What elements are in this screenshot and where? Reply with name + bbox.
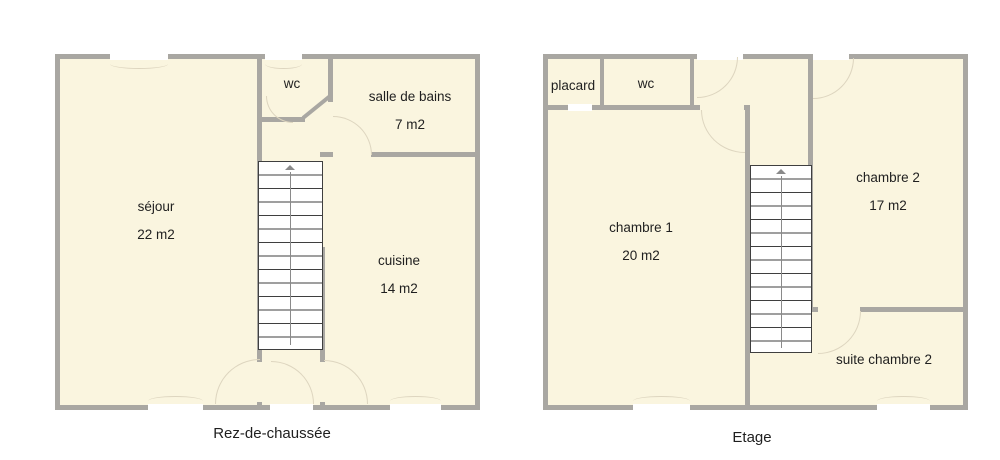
room-name: chambre 1 bbox=[609, 214, 673, 242]
room-label-chambre2: chambre 2 17 m2 bbox=[856, 164, 920, 220]
room-label-wc-etage: wc bbox=[638, 70, 655, 98]
wall-wc-right-etage bbox=[690, 54, 694, 110]
wall-sdb-bottom-right bbox=[371, 152, 480, 157]
room-label-suite-chambre2: suite chambre 2 bbox=[836, 346, 932, 374]
room-label-wc: wc bbox=[284, 70, 301, 98]
wall-suite-top-b bbox=[860, 307, 968, 312]
floor-caption-etage: Etage bbox=[732, 429, 771, 446]
room-name: suite chambre 2 bbox=[836, 346, 932, 374]
window-suite-bottom-curve bbox=[877, 396, 930, 406]
room-area: 17 m2 bbox=[856, 192, 920, 220]
wall-exterior-top-etage bbox=[543, 54, 968, 59]
room-area: 20 m2 bbox=[609, 242, 673, 270]
floorplan-canvas: séjour 22 m2 wc salle de bains 7 m2 cuis… bbox=[0, 0, 1000, 460]
floor-caption-rez-de-chaussee: Rez-de-chaussée bbox=[213, 425, 331, 442]
entrance-door-opening bbox=[270, 404, 313, 411]
room-name: placard bbox=[551, 72, 595, 100]
room-name: wc bbox=[284, 70, 301, 98]
room-area: 22 m2 bbox=[137, 221, 175, 249]
wall-exterior-left bbox=[55, 54, 60, 410]
room-name: wc bbox=[638, 70, 655, 98]
room-area: 7 m2 bbox=[369, 111, 452, 139]
window-wc-top-curve bbox=[265, 59, 302, 69]
window-sejour-bottom-curve bbox=[148, 396, 203, 406]
stairs-ground-centerline bbox=[290, 172, 291, 345]
stairs-etage-centerline bbox=[781, 176, 782, 348]
room-area: 14 m2 bbox=[378, 275, 420, 303]
room-name: chambre 2 bbox=[856, 164, 920, 192]
wall-sdb-bottom-left bbox=[320, 152, 333, 157]
room-label-sejour: séjour 22 m2 bbox=[137, 193, 175, 249]
stairs-ground-up-arrow-icon bbox=[285, 165, 295, 170]
room-label-salle-de-bains: salle de bains 7 m2 bbox=[369, 83, 452, 139]
wall-exterior-right bbox=[475, 54, 480, 410]
wall-exterior-right-etage bbox=[963, 54, 968, 410]
wall-chambre1-top-a bbox=[543, 105, 568, 110]
wall-chambre1-top-b bbox=[592, 105, 700, 110]
window-chambre1-bottom-curve bbox=[633, 396, 690, 406]
room-label-cuisine: cuisine 14 m2 bbox=[378, 247, 420, 303]
room-name: cuisine bbox=[378, 247, 420, 275]
window-cuisine-bottom-curve bbox=[390, 396, 441, 406]
room-name: salle de bains bbox=[369, 83, 452, 111]
room-label-chambre1: chambre 1 20 m2 bbox=[609, 214, 673, 270]
room-label-placard: placard bbox=[551, 72, 595, 100]
stairs-etage-up-arrow-icon bbox=[776, 169, 786, 174]
door-opening-placard bbox=[568, 104, 592, 111]
wall-placard-right bbox=[600, 54, 604, 110]
window-sejour-top-curve bbox=[110, 59, 168, 69]
room-name: séjour bbox=[137, 193, 175, 221]
